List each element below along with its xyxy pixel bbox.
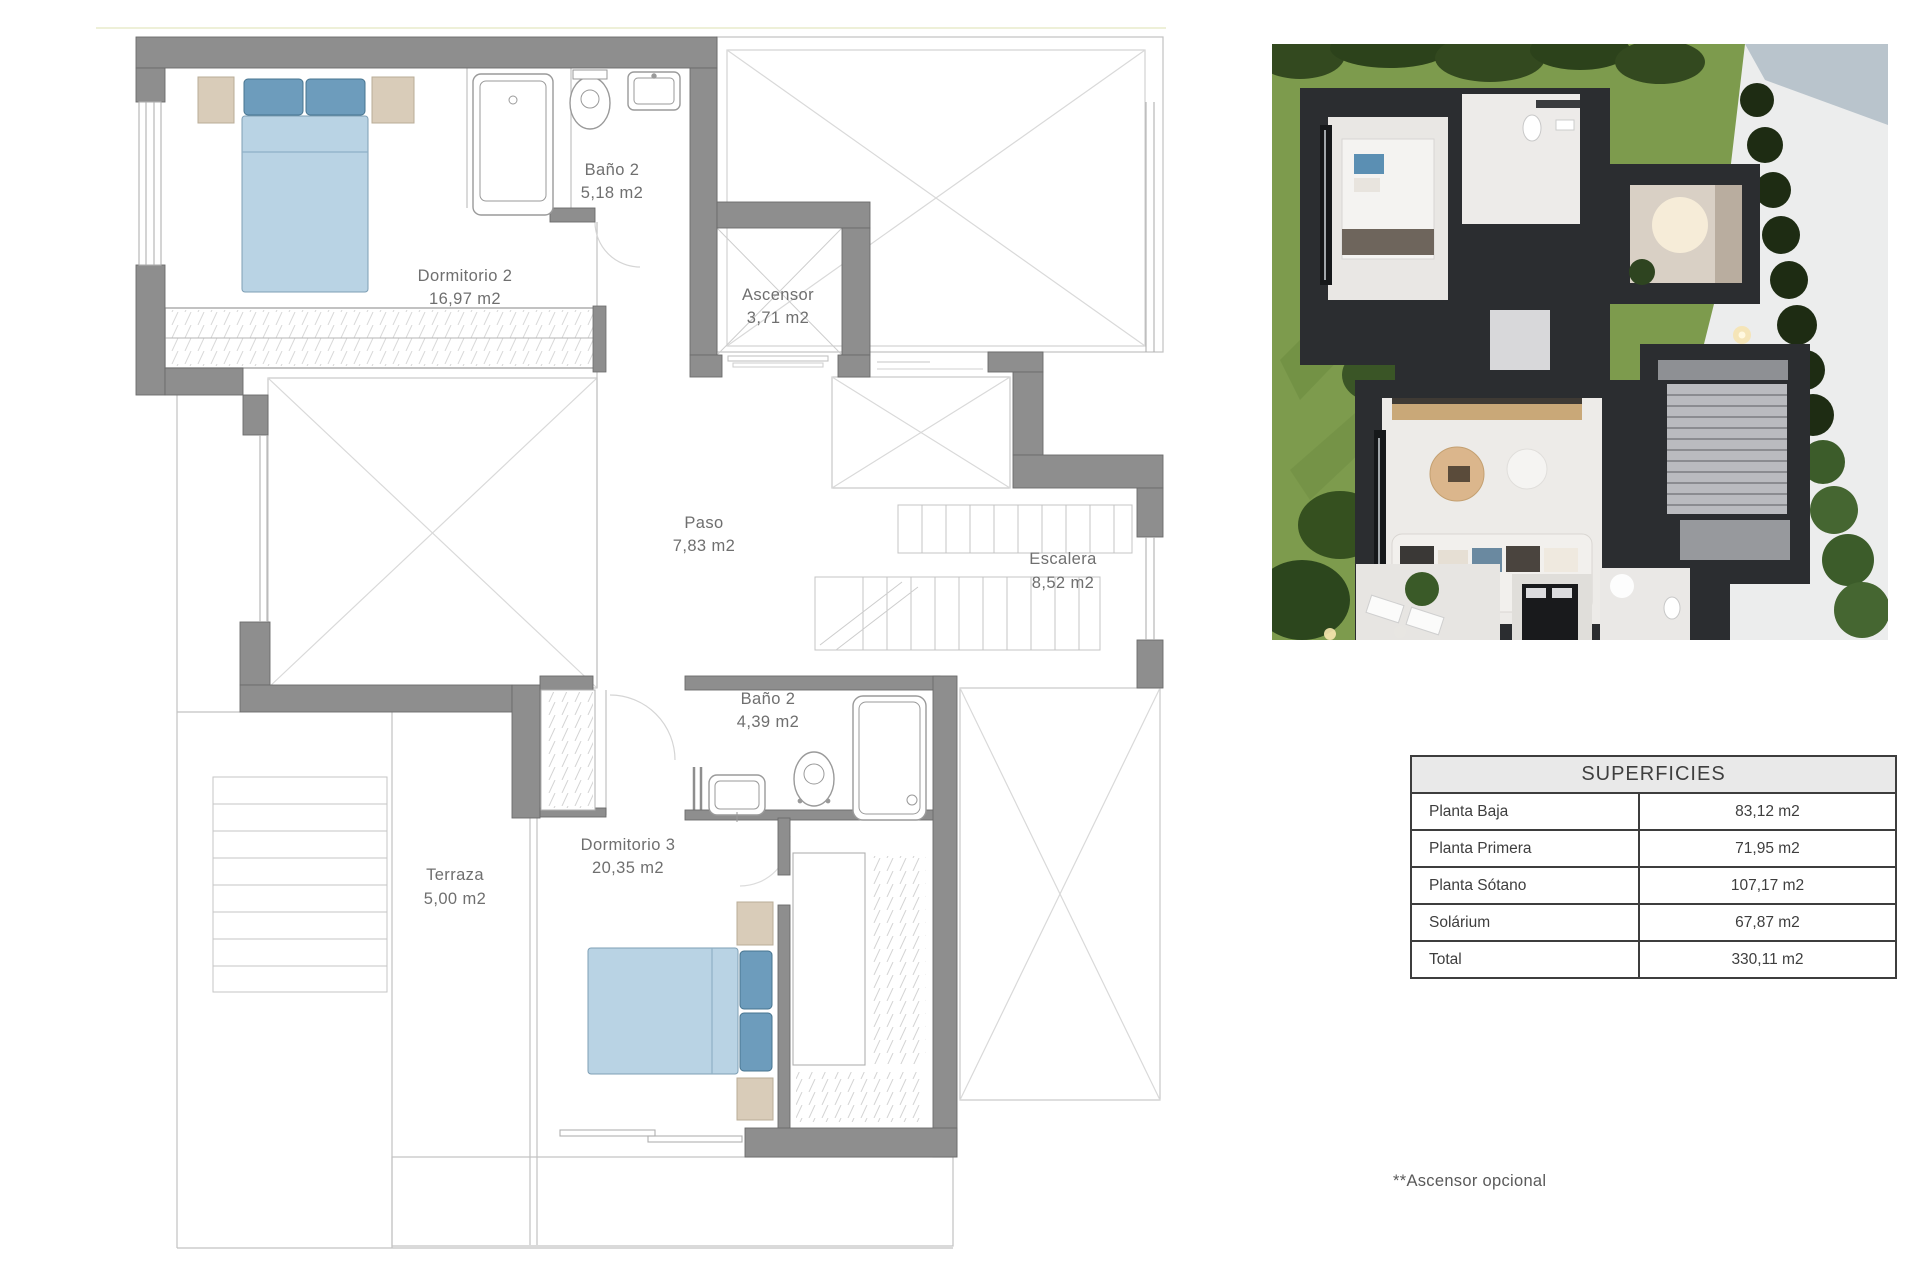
row-value: 107,17 m2 bbox=[1640, 868, 1895, 903]
table-row: Planta Baja 83,12 m2 bbox=[1412, 794, 1895, 831]
row-label: Solárium bbox=[1412, 905, 1640, 940]
row-value: 83,12 m2 bbox=[1640, 794, 1895, 829]
superficies-table: SUPERFICIES Planta Baja 83,12 m2 Planta … bbox=[1410, 755, 1897, 979]
bed-dormitorio2 bbox=[198, 77, 414, 292]
label-bano2-top-area: 5,18 m2 bbox=[581, 184, 643, 202]
nightstand bbox=[737, 902, 773, 945]
label-escalera-area: 8,52 m2 bbox=[1032, 574, 1094, 592]
label-terraza-area: 5,00 m2 bbox=[424, 890, 486, 908]
label-paso: Paso bbox=[684, 514, 723, 532]
table-row: Total 330,11 m2 bbox=[1412, 942, 1895, 977]
row-label: Planta Sótano bbox=[1412, 868, 1640, 903]
render-bathroom-top bbox=[1448, 94, 1580, 239]
table-row: Planta Primera 71,95 m2 bbox=[1412, 831, 1895, 868]
walkin-wardrobe bbox=[793, 853, 926, 1122]
page: Dormitorio 2 16,97 m2 Baño 2 5,18 m2 Asc… bbox=[0, 0, 1920, 1280]
render-bedroom-bottom bbox=[1512, 574, 1592, 640]
pillow bbox=[740, 1013, 772, 1071]
floor-plan: Dormitorio 2 16,97 m2 Baño 2 5,18 m2 Asc… bbox=[136, 37, 1163, 1248]
label-ascensor-area: 3,71 m2 bbox=[747, 309, 809, 327]
label-ascensor: Ascensor bbox=[742, 286, 814, 304]
pillow bbox=[244, 79, 303, 115]
row-value: 67,87 m2 bbox=[1640, 905, 1895, 940]
pillow bbox=[306, 79, 365, 115]
superficies-title: SUPERFICIES bbox=[1412, 757, 1895, 794]
label-terraza: Terraza bbox=[426, 866, 484, 884]
row-label: Planta Primera bbox=[1412, 831, 1640, 866]
bed-body bbox=[242, 116, 368, 292]
render-bathroom-bottom bbox=[1600, 568, 1690, 640]
table-row: Solárium 67,87 m2 bbox=[1412, 905, 1895, 942]
row-value: 330,11 m2 bbox=[1640, 942, 1895, 977]
terrace-louvers bbox=[213, 777, 387, 992]
render-3d-top-view bbox=[1254, 28, 1890, 640]
ascensor-footnote: **Ascensor opcional bbox=[1393, 1172, 1546, 1191]
sliding-door bbox=[560, 1130, 742, 1142]
render-house bbox=[1300, 88, 1810, 640]
label-dormitorio3: Dormitorio 3 bbox=[581, 836, 676, 854]
bed-dormitorio3 bbox=[588, 902, 773, 1120]
label-paso-area: 7,83 m2 bbox=[673, 537, 735, 555]
label-escalera: Escalera bbox=[1029, 550, 1097, 568]
wardrobe-band bbox=[165, 306, 606, 372]
nightstand bbox=[372, 77, 414, 123]
row-value: 71,95 m2 bbox=[1640, 831, 1895, 866]
bed-body bbox=[588, 948, 738, 1074]
render-bedroom-top bbox=[1320, 117, 1448, 300]
label-dormitorio2: Dormitorio 2 bbox=[418, 267, 513, 285]
pillow bbox=[740, 951, 772, 1009]
label-bano2-bottom: Baño 2 bbox=[741, 690, 796, 708]
render-terrace bbox=[1356, 564, 1500, 640]
label-bano2-top: Baño 2 bbox=[585, 161, 640, 179]
render-hall-warm bbox=[1629, 185, 1742, 285]
floor-plan-and-render: Dormitorio 2 16,97 m2 Baño 2 5,18 m2 Asc… bbox=[0, 0, 1920, 1280]
render-hall-floor bbox=[1490, 310, 1550, 370]
nightstand bbox=[737, 1078, 773, 1120]
label-bano2-bottom-area: 4,39 m2 bbox=[737, 713, 799, 731]
row-label: Planta Baja bbox=[1412, 794, 1640, 829]
nightstand bbox=[198, 77, 234, 123]
row-label: Total bbox=[1412, 942, 1640, 977]
closet-small bbox=[541, 690, 595, 810]
label-dormitorio2-area: 16,97 m2 bbox=[429, 290, 501, 308]
table-row: Planta Sótano 107,17 m2 bbox=[1412, 868, 1895, 905]
label-dormitorio3-area: 20,35 m2 bbox=[592, 859, 664, 877]
bathroom-top-fixtures bbox=[473, 70, 680, 215]
